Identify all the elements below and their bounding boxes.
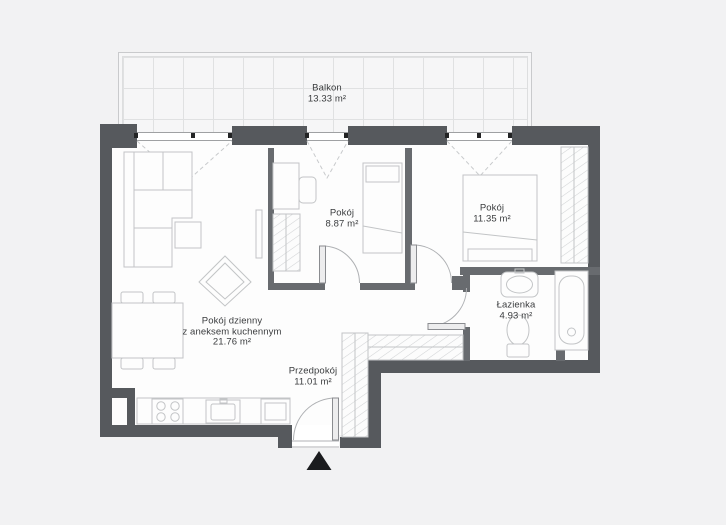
door-leaf — [428, 324, 465, 330]
desk — [273, 163, 316, 209]
door-leaf — [333, 398, 339, 440]
room-label-living: Pokój dzienny z aneksem kuchennym 21.76 … — [182, 316, 281, 348]
room-name: Pokój — [326, 209, 359, 220]
wardrobe — [273, 214, 300, 271]
room-name: Pokój — [473, 204, 511, 215]
room-label-small: Pokój 8.87 m² — [326, 209, 359, 230]
floorplan: Balkon 13.33 m² Pokój dzienny z aneksem … — [0, 0, 726, 525]
kitchen-sink — [206, 399, 240, 423]
hall-wardrobe-horizontal — [368, 335, 463, 360]
room-name: Pokój dzienny — [182, 316, 281, 327]
sofa — [124, 152, 192, 267]
room-label-balcony: Balkon 13.33 m² — [308, 84, 346, 105]
room-name: Łazienka — [497, 301, 536, 312]
room-area: 21.76 m² — [182, 337, 281, 348]
dining-table — [112, 292, 183, 369]
kitchen-counter — [137, 398, 290, 424]
single-bed — [363, 163, 402, 253]
door-leaf — [411, 245, 417, 283]
room-area: 4.93 m² — [497, 311, 536, 322]
wardrobe — [561, 147, 588, 263]
washbasin — [501, 269, 538, 297]
hall-wardrobe-vertical — [342, 333, 368, 437]
window-hinge-icon — [134, 133, 512, 138]
armchair — [199, 256, 251, 306]
tv — [256, 210, 262, 258]
room-label-hallway: Przedpokój 11.01 m² — [289, 367, 338, 388]
room-area: 11.35 m² — [473, 214, 511, 225]
room-name: Przedpokój — [289, 367, 338, 378]
room-label-bathroom: Łazienka 4.93 m² — [497, 301, 536, 322]
room-area: 13.33 m² — [308, 94, 346, 105]
entrance-arrow-icon — [307, 451, 332, 470]
desk-chair — [299, 177, 316, 203]
fridge — [261, 399, 290, 424]
coffee-table — [175, 222, 201, 248]
door-leaf — [320, 246, 326, 283]
bathtub — [555, 271, 588, 350]
room-area: 11.01 m² — [289, 377, 338, 388]
room-area: 8.87 m² — [326, 219, 359, 230]
room-label-large: Pokój 11.35 m² — [473, 204, 511, 225]
room-name: Balkon — [308, 84, 346, 95]
floorplan-graphics — [0, 0, 726, 525]
window-swing-lines — [137, 141, 512, 183]
